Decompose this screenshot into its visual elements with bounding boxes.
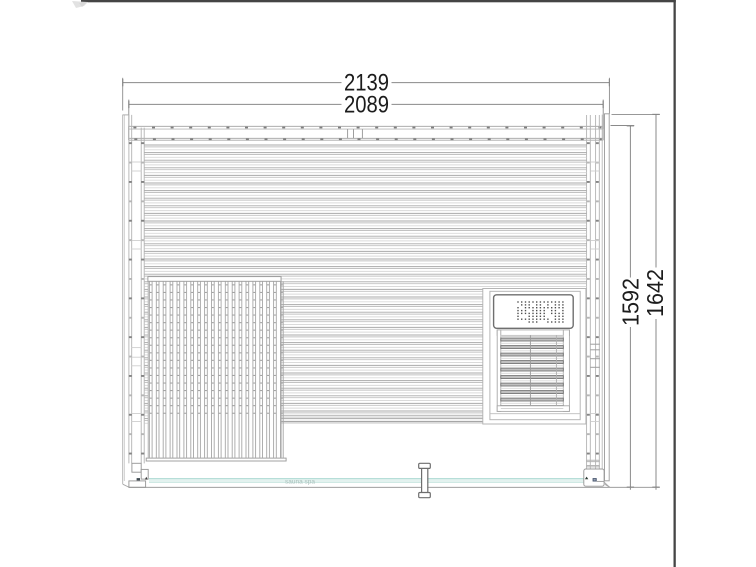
svg-text:sauna spa: sauna spa <box>285 480 316 486</box>
svg-text:2089: 2089 <box>344 91 389 118</box>
svg-text:1642: 1642 <box>642 269 668 317</box>
svg-text:1592: 1592 <box>618 278 644 326</box>
